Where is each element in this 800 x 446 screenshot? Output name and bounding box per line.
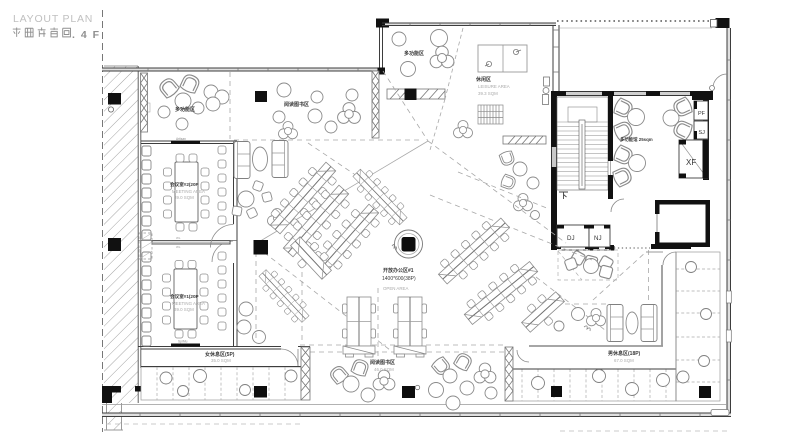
svg-text:39.0 SQM: 39.0 SQM [174,195,194,200]
svg-text:WL: WL [176,236,181,240]
svg-text:46.0 SQM: 46.0 SQM [374,367,394,372]
svg-text:WL: WL [176,245,181,249]
svg-text:SJ: SJ [699,130,706,136]
svg-text:OPEN AREA: OPEN AREA [383,286,408,291]
svg-text:67.0 SQM: 67.0 SQM [614,358,634,363]
svg-text:1400*600(38P): 1400*600(38P) [382,276,416,282]
svg-text:开放办公区#1: 开放办公区#1 [383,267,414,274]
svg-text:XF: XF [686,158,696,167]
svg-text:NJ: NJ [594,235,602,242]
svg-text:SprMu: SprMu [178,340,188,344]
svg-text:LEISURE AREA: LEISURE AREA [478,84,510,89]
svg-text:39.0 SQM: 39.0 SQM [174,307,194,312]
svg-text:休闲区: 休闲区 [475,76,491,83]
svg-text:会议室#1(20P: 会议室#1(20P [169,293,199,300]
svg-text:多功能区: 多功能区 [404,50,424,57]
svg-text:女休息区(5P): 女休息区(5P) [205,351,235,358]
svg-text:DJ: DJ [567,235,575,242]
svg-text:男休息区(18P): 男休息区(18P) [607,350,641,357]
svg-text:LAYOUT PLAN: LAYOUT PLAN [13,13,93,25]
svg-text:MEETING AREA: MEETING AREA [172,301,205,306]
svg-text:MEETING AREA: MEETING AREA [172,189,205,194]
svg-text:Artisan: Artisan [176,137,186,141]
svg-text:阅读图书区: 阅读图书区 [284,101,309,108]
svg-text:会议室#2(20P: 会议室#2(20P [169,181,199,188]
svg-text:PF: PF [698,111,706,117]
svg-text:. 4 F: . 4 F [72,29,101,41]
svg-text:35.0 SQM: 35.0 SQM [211,358,231,363]
svg-text:39.3 SQM: 39.3 SQM [478,91,498,96]
svg-text:多功能馆 25sqm: 多功能馆 25sqm [620,136,653,143]
svg-text:多功能区: 多功能区 [175,106,195,113]
svg-text:阅读图书区: 阅读图书区 [370,359,395,366]
